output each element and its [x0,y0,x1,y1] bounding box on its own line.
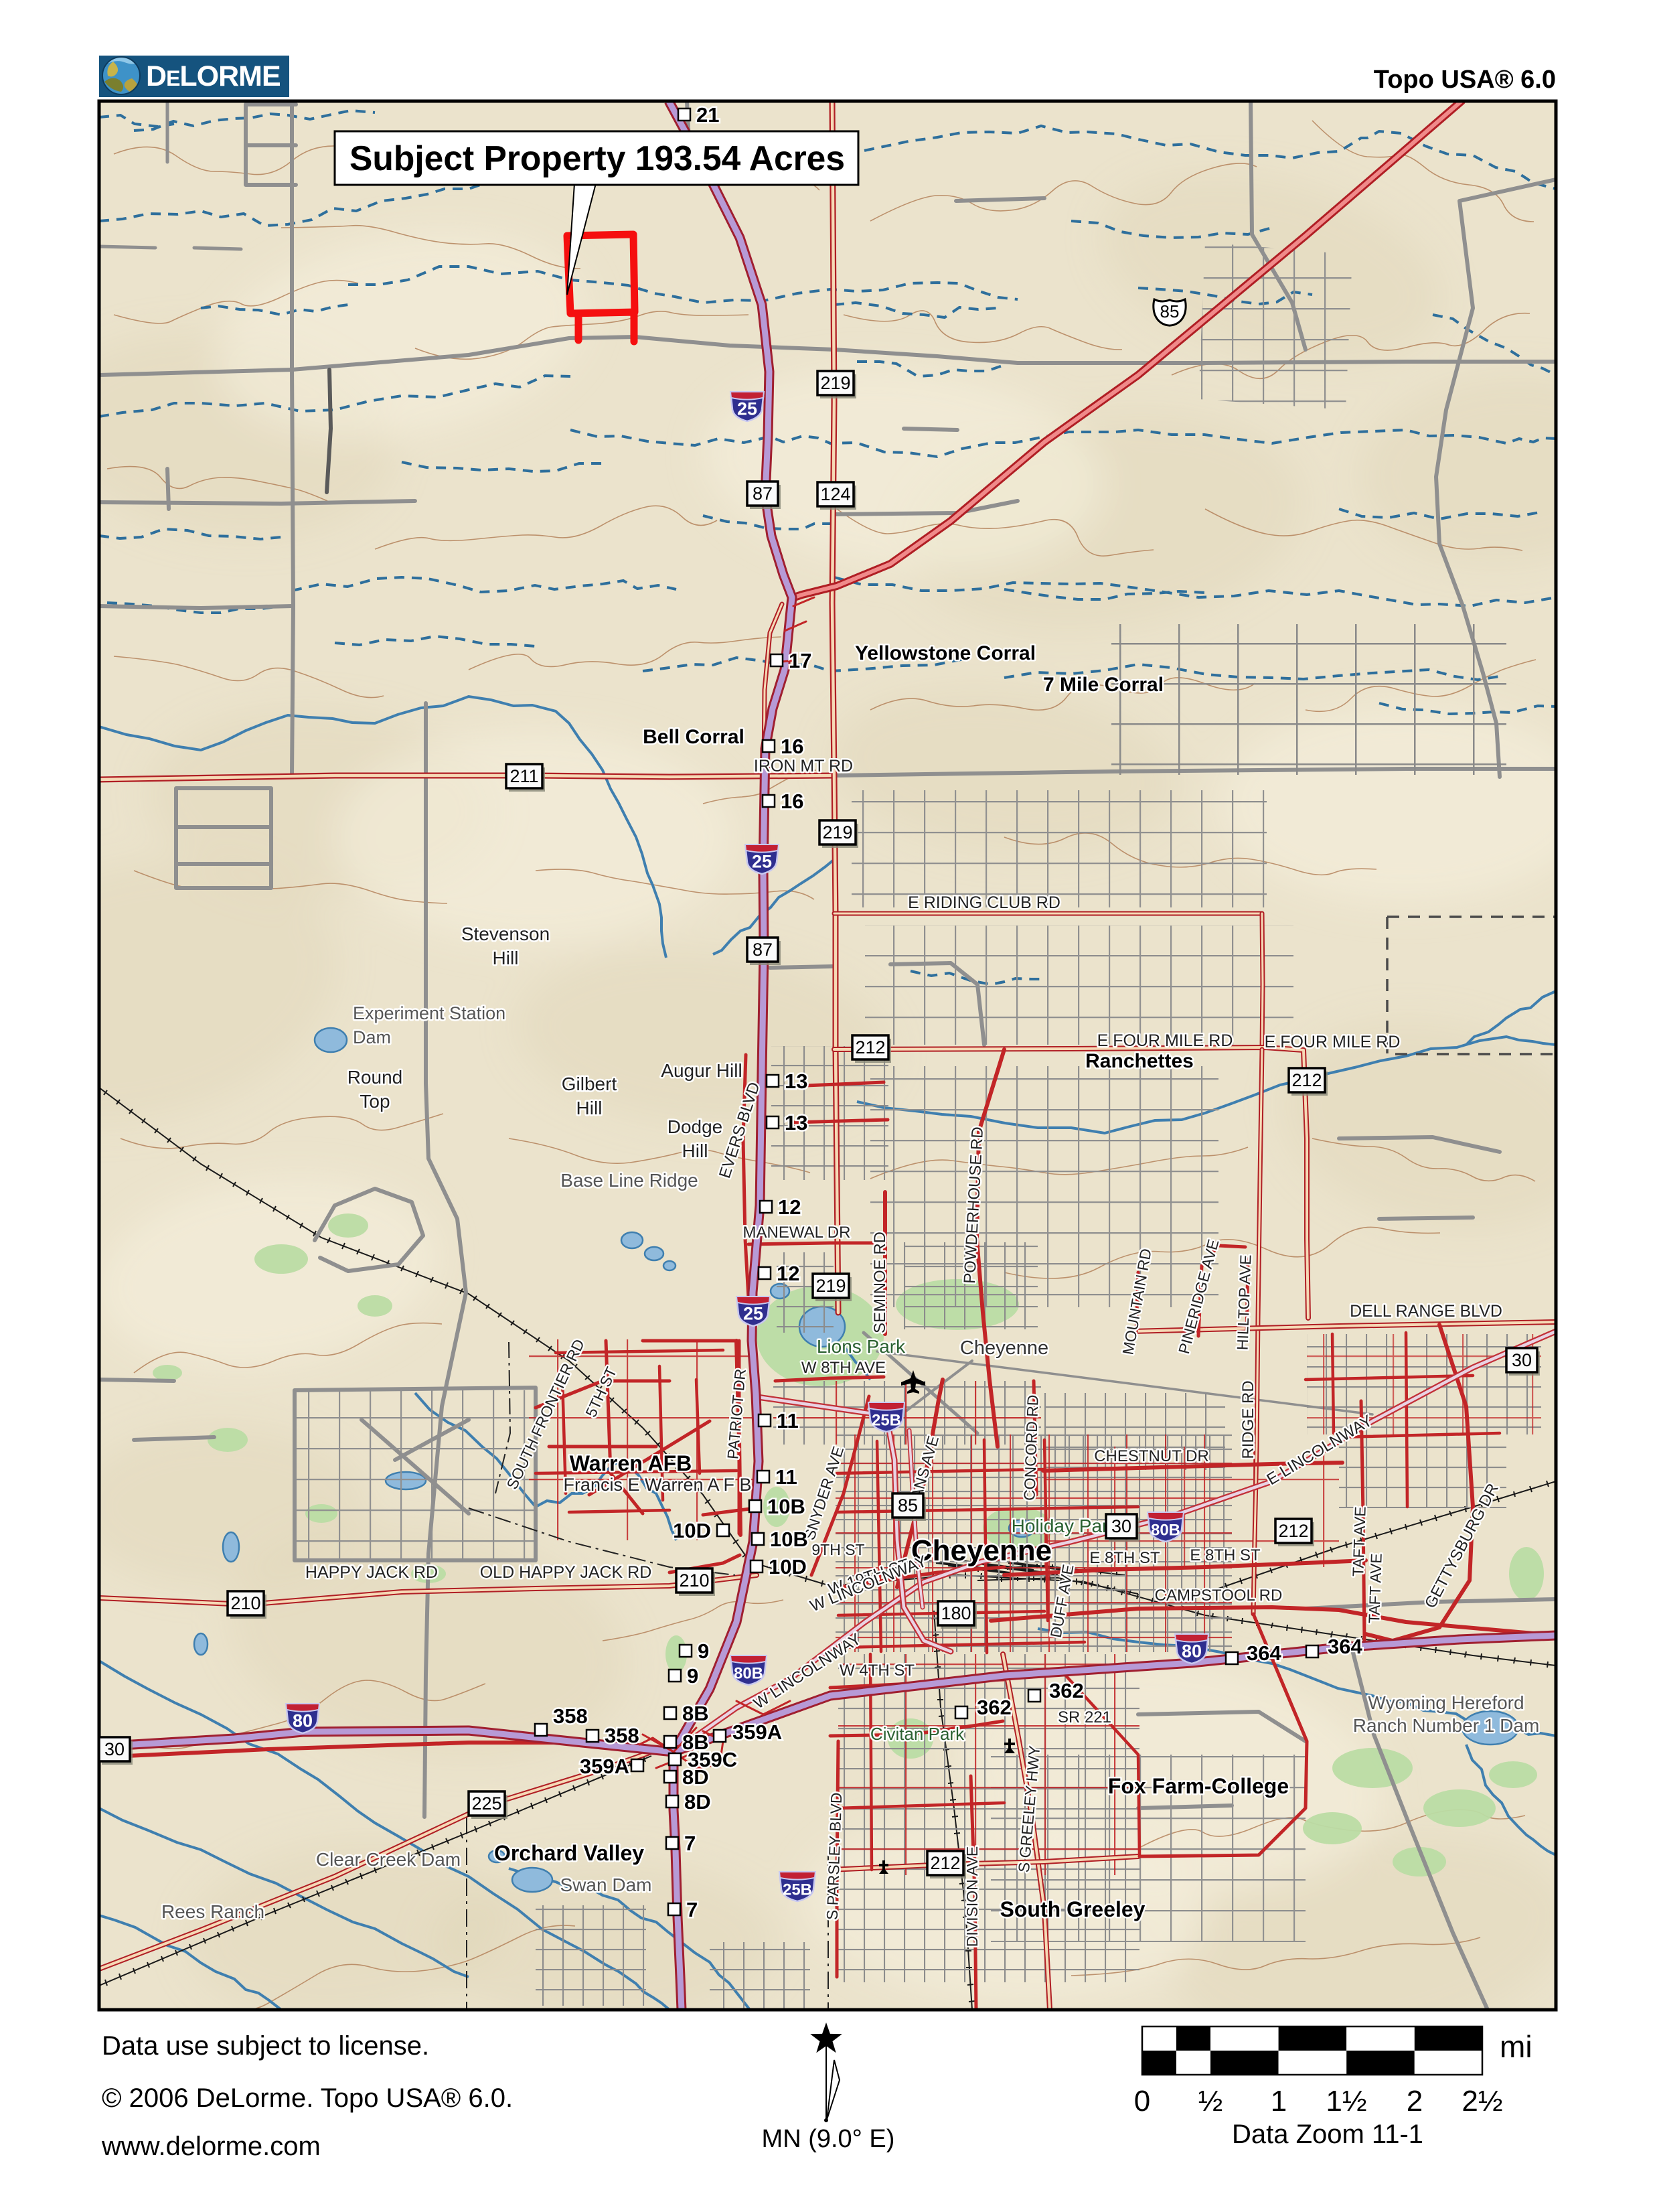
svg-text:359C: 359C [688,1748,737,1771]
svg-text:9: 9 [687,1664,698,1688]
svg-text:7: 7 [686,1898,698,1921]
svg-text:MANEWAL DR: MANEWAL DR [743,1224,851,1242]
svg-text:219: 219 [820,373,850,393]
svg-text:CAMPSTOOL RD: CAMPSTOOL RD [1155,1587,1283,1605]
svg-text:Yellowstone Corral: Yellowstone Corral [855,642,1036,664]
svg-text:mi: mi [1500,2029,1532,2064]
svg-text:364: 364 [1328,1635,1362,1658]
svg-text:1: 1 [1271,2085,1287,2118]
svg-text:210: 210 [679,1570,709,1591]
svg-text:359A: 359A [580,1755,629,1778]
svg-text:80: 80 [1182,1641,1202,1661]
svg-text:Orchard Valley: Orchard Valley [494,1841,644,1865]
svg-text:Topo USA® 6.0: Topo USA® 6.0 [1374,66,1556,94]
svg-text:TAFT AVE: TAFT AVE [1349,1506,1369,1577]
svg-text:Subject Property 193.54 Acres: Subject Property 193.54 Acres [349,139,845,178]
svg-text:Hill: Hill [682,1140,708,1161]
svg-text:180: 180 [941,1603,971,1623]
svg-text:© 2006 DeLorme. Topo USA® 6.0.: © 2006 DeLorme. Topo USA® 6.0. [102,2083,513,2113]
svg-text:25: 25 [737,398,757,419]
svg-text:Gilbert: Gilbert [562,1074,617,1094]
svg-text:E FOUR MILE RD: E FOUR MILE RD [1265,1033,1401,1051]
svg-text:358: 358 [605,1724,639,1747]
svg-text:Warren AFB: Warren AFB [570,1451,692,1475]
svg-text:Lions Park: Lions Park [817,1336,906,1357]
svg-text:10B: 10B [767,1495,805,1518]
svg-text:Hill: Hill [493,948,519,968]
svg-text:1½: 1½ [1326,2085,1366,2118]
svg-text:8B: 8B [682,1702,709,1725]
svg-text:25B: 25B [872,1411,901,1429]
svg-text:219: 219 [822,822,852,842]
svg-text:E 8TH ST: E 8TH ST [1190,1546,1261,1564]
svg-text:225: 225 [471,1793,501,1814]
svg-text:13: 13 [785,1070,807,1093]
svg-text:OLD HAPPY JACK RD: OLD HAPPY JACK RD [480,1563,652,1582]
svg-text:212: 212 [1291,1070,1322,1090]
svg-text:Dam: Dam [353,1027,391,1047]
svg-text:½: ½ [1198,2085,1223,2118]
svg-text:Round: Round [347,1067,403,1088]
svg-text:SR 221: SR 221 [1058,1708,1111,1726]
svg-text:www.delorme.com: www.delorme.com [101,2132,321,2161]
svg-text:Swan Dam: Swan Dam [560,1874,652,1895]
svg-text:13: 13 [785,1111,807,1134]
svg-text:362: 362 [977,1696,1012,1719]
svg-text:212: 212 [1278,1521,1308,1541]
svg-text:30: 30 [1111,1516,1131,1536]
svg-text:25B: 25B [783,1881,812,1899]
svg-text:Dodge: Dodge [667,1116,723,1137]
svg-text:HAPPY JACK RD: HAPPY JACK RD [305,1563,438,1582]
svg-text:219: 219 [815,1276,846,1296]
svg-text:364: 364 [1247,1641,1281,1665]
svg-text:Rees Ranch: Rees Ranch [161,1901,264,1922]
svg-text:80: 80 [293,1710,313,1730]
svg-text:80B: 80B [1151,1521,1180,1539]
svg-text:Base Line Ridge: Base Line Ridge [560,1170,698,1191]
svg-text:17: 17 [789,649,811,672]
svg-text:W 8TH AVE: W 8TH AVE [801,1359,886,1377]
svg-text:8D: 8D [684,1790,711,1814]
svg-text:Wyoming Hereford: Wyoming Hereford [1368,1692,1524,1713]
svg-text:E 8TH ST: E 8TH ST [1089,1549,1160,1567]
svg-text:Top: Top [360,1091,390,1112]
svg-text:Augur Hill: Augur Hill [661,1060,742,1081]
svg-text:Cheyenne: Cheyenne [960,1337,1048,1359]
svg-text:Experiment Station: Experiment Station [353,1003,505,1023]
svg-text:124: 124 [820,484,850,504]
svg-text:Data use subject to license.: Data use subject to license. [102,2031,429,2061]
svg-text:2½: 2½ [1462,2085,1502,2118]
svg-text:87: 87 [753,484,773,504]
svg-text:358: 358 [553,1704,588,1728]
svg-text:12: 12 [778,1195,801,1219]
svg-text:10D: 10D [769,1555,807,1578]
svg-text:16: 16 [781,735,803,758]
svg-text:Cheyenne: Cheyenne [911,1534,1052,1567]
svg-text:80B: 80B [734,1664,763,1682]
svg-text:2: 2 [1407,2085,1423,2118]
svg-text:25: 25 [743,1303,763,1323]
svg-text:TAFT AVE: TAFT AVE [1365,1553,1385,1624]
svg-text:Stevenson: Stevenson [461,924,550,944]
svg-text:Bell Corral: Bell Corral [643,726,744,748]
svg-text:12: 12 [777,1262,799,1285]
svg-text:9: 9 [698,1639,709,1663]
svg-text:11: 11 [777,1409,799,1432]
svg-text:21: 21 [696,103,719,127]
svg-text:E FOUR MILE RD: E FOUR MILE RD [1097,1031,1233,1050]
svg-text:362: 362 [1049,1679,1084,1702]
svg-text:CHESTNUT DR: CHESTNUT DR [1094,1447,1209,1465]
svg-text:10B: 10B [770,1528,808,1551]
svg-text:Clear Creek Dam: Clear Creek Dam [316,1849,461,1870]
svg-text:IRON MT RD: IRON MT RD [754,757,853,776]
svg-text:Francis E Warren A F B: Francis E Warren A F B [563,1475,751,1495]
svg-text:Ranch Number 1 Dam: Ranch Number 1 Dam [1353,1715,1540,1736]
svg-text:30: 30 [1512,1350,1532,1370]
svg-text:Civitan Park: Civitan Park [870,1724,965,1744]
svg-text:210: 210 [230,1593,260,1613]
svg-text:87: 87 [753,940,773,960]
svg-text:0: 0 [1134,2085,1150,2118]
svg-text:CONCORD RD: CONCORD RD [1020,1394,1042,1501]
svg-text:HILLTOP AVE: HILLTOP AVE [1234,1254,1255,1351]
svg-text:South Greeley: South Greeley [1000,1897,1146,1921]
svg-text:SEMINOE RD: SEMINOE RD [871,1232,889,1333]
svg-text:7: 7 [684,1832,696,1855]
svg-text:211: 211 [509,766,538,786]
svg-text:212: 212 [930,1853,960,1873]
svg-text:E RIDING CLUB RD: E RIDING CLUB RD [908,893,1060,912]
svg-text:212: 212 [855,1037,885,1057]
svg-text:DELL RANGE BLVD: DELL RANGE BLVD [1350,1302,1502,1321]
svg-text:11: 11 [775,1465,797,1489]
svg-text:9TH ST: 9TH ST [811,1541,864,1558]
svg-text:85: 85 [898,1495,918,1516]
svg-text:Hill: Hill [576,1098,603,1118]
svg-text:RIDGE RD: RIDGE RD [1239,1380,1257,1459]
svg-text:30: 30 [104,1739,125,1759]
svg-text:10D: 10D [673,1519,711,1542]
svg-text:25: 25 [752,851,772,871]
svg-text:Fox Farm-College: Fox Farm-College [1108,1774,1289,1798]
svg-text:7 Mile Corral: 7 Mile Corral [1043,674,1164,696]
svg-text:MN (9.0° E): MN (9.0° E) [762,2125,895,2153]
svg-text:359A: 359A [732,1720,782,1744]
svg-text:16: 16 [781,790,803,813]
svg-text:Data Zoom 11-1: Data Zoom 11-1 [1232,2120,1423,2149]
svg-text:Holiday Park: Holiday Park [1012,1516,1119,1536]
svg-text:85: 85 [1160,301,1180,321]
svg-text:W 4TH ST: W 4TH ST [840,1662,915,1680]
svg-text:Ranchettes: Ranchettes [1085,1050,1194,1072]
